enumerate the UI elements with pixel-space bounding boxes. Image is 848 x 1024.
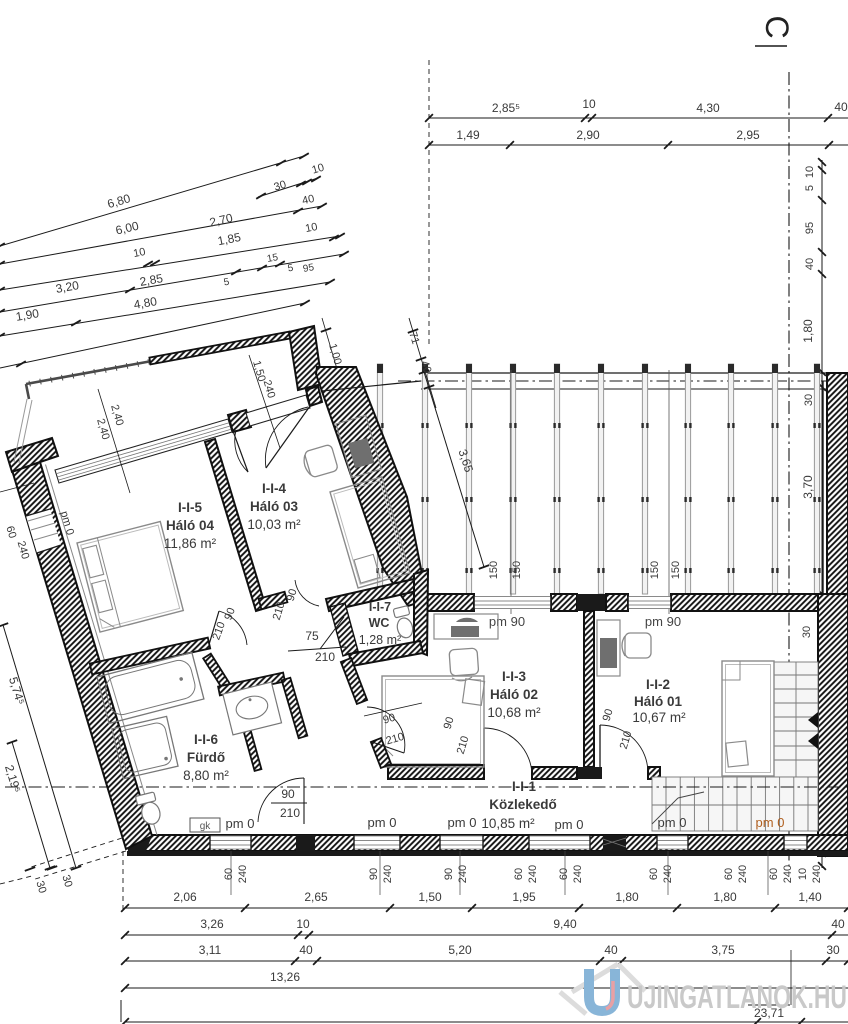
svg-text:60: 60: [648, 868, 660, 880]
svg-text:pm 0: pm 0: [756, 815, 785, 830]
svg-text:8,80 m²: 8,80 m²: [183, 768, 229, 783]
svg-text:pm 0: pm 0: [448, 815, 477, 830]
svg-text:10: 10: [132, 246, 146, 260]
svg-text:95: 95: [804, 222, 816, 234]
svg-text:30: 30: [801, 626, 813, 638]
svg-text:90: 90: [368, 868, 380, 880]
svg-text:240: 240: [237, 865, 249, 883]
svg-text:90: 90: [281, 787, 295, 801]
svg-text:Háló 03: Háló 03: [250, 499, 299, 514]
svg-text:C: C: [759, 15, 795, 38]
svg-text:150: 150: [649, 561, 661, 579]
svg-text:75: 75: [305, 629, 319, 643]
svg-text:10,67 m²: 10,67 m²: [632, 710, 686, 725]
svg-text:2,85⁵: 2,85⁵: [492, 101, 520, 115]
svg-text:60: 60: [223, 868, 235, 880]
svg-text:3,26: 3,26: [200, 917, 224, 931]
svg-text:1,40: 1,40: [798, 890, 822, 904]
svg-text:pm 0: pm 0: [658, 815, 687, 830]
svg-text:40: 40: [804, 258, 816, 270]
svg-text:gk: gk: [200, 821, 212, 832]
svg-text:30: 30: [826, 943, 840, 957]
svg-text:5,20: 5,20: [448, 943, 472, 957]
svg-text:1,80: 1,80: [801, 319, 815, 343]
svg-text:9,40: 9,40: [553, 917, 577, 931]
svg-text:I-I-6: I-I-6: [194, 732, 218, 747]
svg-text:10: 10: [304, 221, 318, 235]
svg-text:UJINGATLANOK.HU: UJINGATLANOK.HU: [627, 979, 847, 1015]
svg-text:90: 90: [443, 868, 455, 880]
svg-text:Háló 04: Háló 04: [166, 518, 215, 533]
svg-text:240: 240: [382, 865, 394, 883]
svg-text:1,50: 1,50: [418, 890, 442, 904]
svg-text:10: 10: [296, 917, 310, 931]
svg-text:1,95: 1,95: [512, 890, 536, 904]
svg-text:13,26: 13,26: [270, 970, 300, 984]
svg-text:1,80: 1,80: [615, 890, 639, 904]
svg-text:2,95: 2,95: [736, 128, 760, 142]
svg-text:240: 240: [811, 865, 823, 883]
svg-text:40: 40: [604, 943, 618, 957]
svg-text:pm 0: pm 0: [555, 817, 584, 832]
svg-text:30: 30: [803, 394, 815, 406]
svg-text:3,70: 3,70: [801, 475, 815, 499]
svg-text:I-I-3: I-I-3: [502, 669, 526, 684]
svg-text:40: 40: [834, 100, 848, 114]
svg-text:10,68 m²: 10,68 m²: [487, 705, 541, 720]
svg-text:10: 10: [582, 97, 596, 111]
svg-text:40: 40: [831, 917, 845, 931]
svg-text:Háló 02: Háló 02: [490, 687, 538, 702]
svg-text:11,86 m²: 11,86 m²: [164, 536, 217, 551]
svg-text:60: 60: [768, 868, 780, 880]
svg-text:2,90: 2,90: [576, 128, 600, 142]
svg-text:2,06: 2,06: [173, 890, 197, 904]
svg-text:3,75: 3,75: [711, 943, 735, 957]
svg-text:10,85 m²: 10,85 m²: [481, 816, 535, 831]
svg-text:WC: WC: [369, 616, 390, 630]
svg-text:10,03 m²: 10,03 m²: [247, 517, 301, 532]
svg-text:1,80: 1,80: [713, 890, 737, 904]
svg-text:240: 240: [457, 865, 469, 883]
svg-text:10: 10: [804, 166, 816, 178]
svg-text:1,28 m²: 1,28 m²: [359, 633, 401, 647]
svg-text:I-I-5: I-I-5: [178, 500, 202, 515]
svg-text:40: 40: [299, 943, 313, 957]
svg-text:Fürdő: Fürdő: [187, 750, 225, 765]
svg-text:240: 240: [527, 865, 539, 883]
svg-text:2,65: 2,65: [304, 890, 328, 904]
svg-text:150: 150: [670, 561, 682, 579]
svg-text:3,11: 3,11: [199, 943, 222, 957]
svg-text:150: 150: [488, 561, 500, 579]
svg-text:150: 150: [511, 561, 523, 579]
svg-text:Háló 01: Háló 01: [634, 694, 683, 709]
svg-text:pm 90: pm 90: [645, 614, 681, 629]
svg-text:pm 0: pm 0: [368, 815, 397, 830]
svg-text:1,49: 1,49: [456, 128, 480, 142]
svg-text:pm 0: pm 0: [226, 816, 255, 831]
svg-text:210: 210: [280, 806, 300, 820]
svg-text:60: 60: [558, 868, 570, 880]
svg-text:Közlekedő: Közlekedő: [489, 797, 557, 812]
svg-text:pm 90: pm 90: [489, 614, 525, 629]
svg-text:210: 210: [315, 650, 335, 664]
svg-text:I-I-7: I-I-7: [369, 600, 391, 614]
svg-text:5: 5: [804, 185, 816, 191]
svg-text:240: 240: [737, 865, 749, 883]
svg-text:60: 60: [723, 868, 735, 880]
svg-text:4,30: 4,30: [696, 101, 720, 115]
svg-text:60: 60: [513, 868, 525, 880]
svg-text:10: 10: [797, 868, 809, 880]
svg-text:240: 240: [782, 865, 794, 883]
svg-text:I-I-4: I-I-4: [262, 481, 286, 496]
svg-text:240: 240: [572, 865, 584, 883]
svg-text:I-I-2: I-I-2: [646, 677, 670, 692]
